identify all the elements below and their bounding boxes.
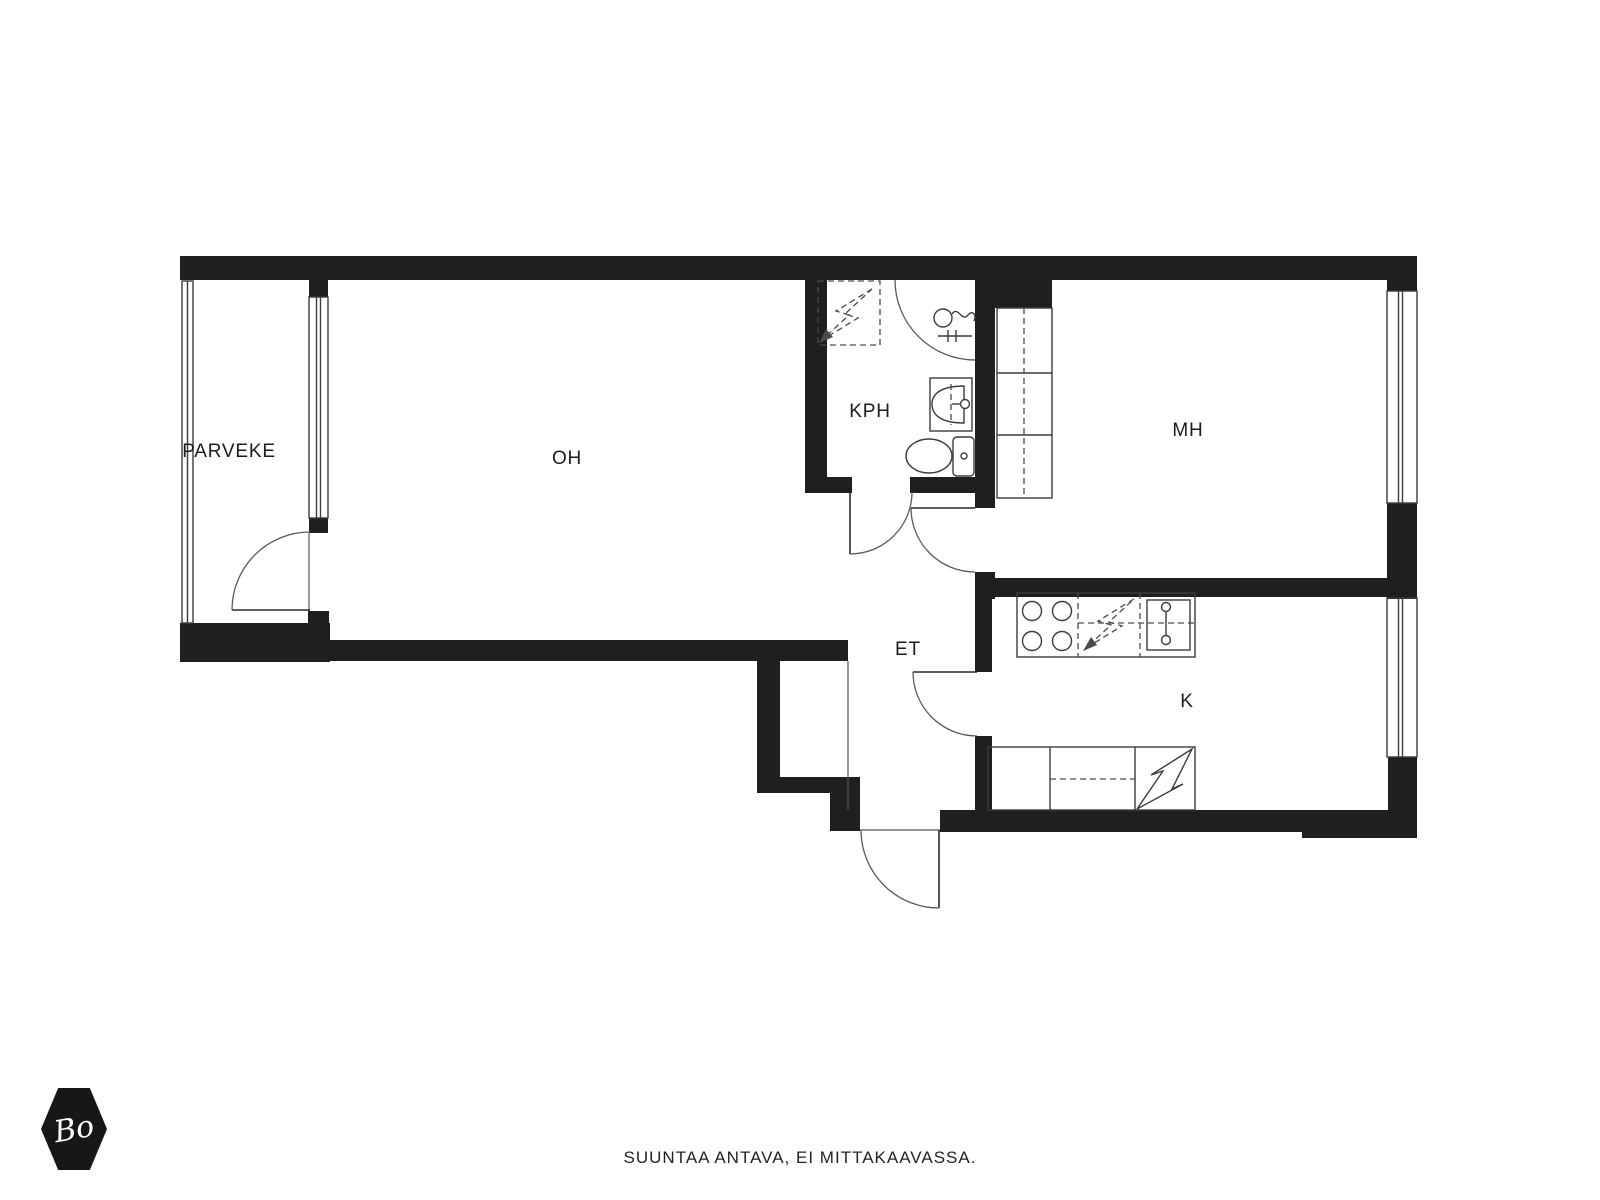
bathroom-fixtures <box>818 280 975 476</box>
bedroom-fixtures <box>997 308 1052 498</box>
bathroom-door-icon <box>850 492 912 554</box>
kitchen-window <box>1387 598 1417 757</box>
kitchen-sink-icon <box>1147 600 1190 650</box>
balcony-window <box>309 297 328 518</box>
kitchen-fixtures <box>988 593 1195 810</box>
kitchen-door-icon <box>913 672 977 736</box>
stove-icon <box>1023 602 1072 651</box>
dishwasher-reservation-icon <box>1083 599 1134 651</box>
room-label-kph: KPH <box>849 401 890 423</box>
washer-reservation-icon <box>818 281 880 345</box>
fridge-reservation-icon <box>1137 749 1192 809</box>
floor-plan-drawing <box>0 0 1600 1200</box>
bedroom-window <box>1387 291 1417 503</box>
walls-layer <box>180 256 1417 838</box>
shower-mixer-icon <box>934 309 975 342</box>
balcony-door-icon <box>232 532 310 610</box>
doors-layer <box>232 492 977 908</box>
floor-plan-page: PARVEKE OH KPH MH ET K Bo SUUNTAA ANTAVA… <box>0 0 1600 1200</box>
room-label-mh: MH <box>1172 420 1203 442</box>
room-label-oh: OH <box>552 448 582 470</box>
entrance-door-icon <box>861 830 939 908</box>
room-label-et: ET <box>895 639 921 661</box>
washbasin-icon <box>930 378 972 431</box>
toilet-icon <box>906 437 974 476</box>
room-label-k: K <box>1180 691 1193 713</box>
bedroom-door-icon <box>911 508 975 572</box>
bo-logo-text: Bo <box>51 1108 97 1149</box>
windows-layer <box>182 281 1417 830</box>
footer-disclaimer: SUUNTAA ANTAVA, EI MITTAKAAVASSA. <box>0 1148 1600 1168</box>
room-label-parveke: PARVEKE <box>182 441 276 463</box>
wardrobe-icon <box>997 308 1052 498</box>
